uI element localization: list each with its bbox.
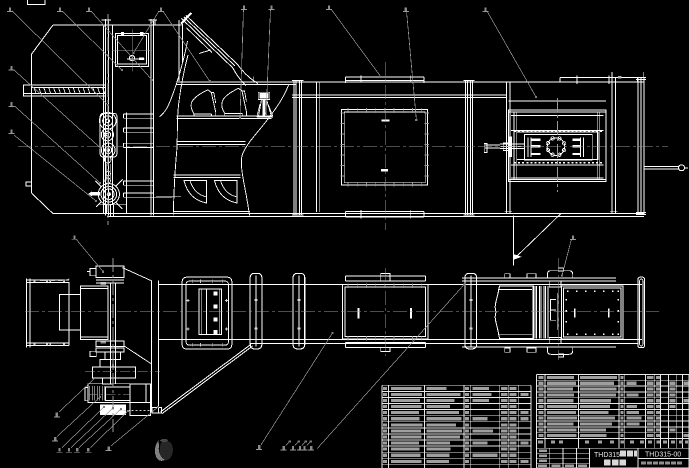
svg-text:THD315-00: THD315-00 [645, 452, 681, 459]
svg-text:THD315: THD315 [594, 452, 620, 459]
